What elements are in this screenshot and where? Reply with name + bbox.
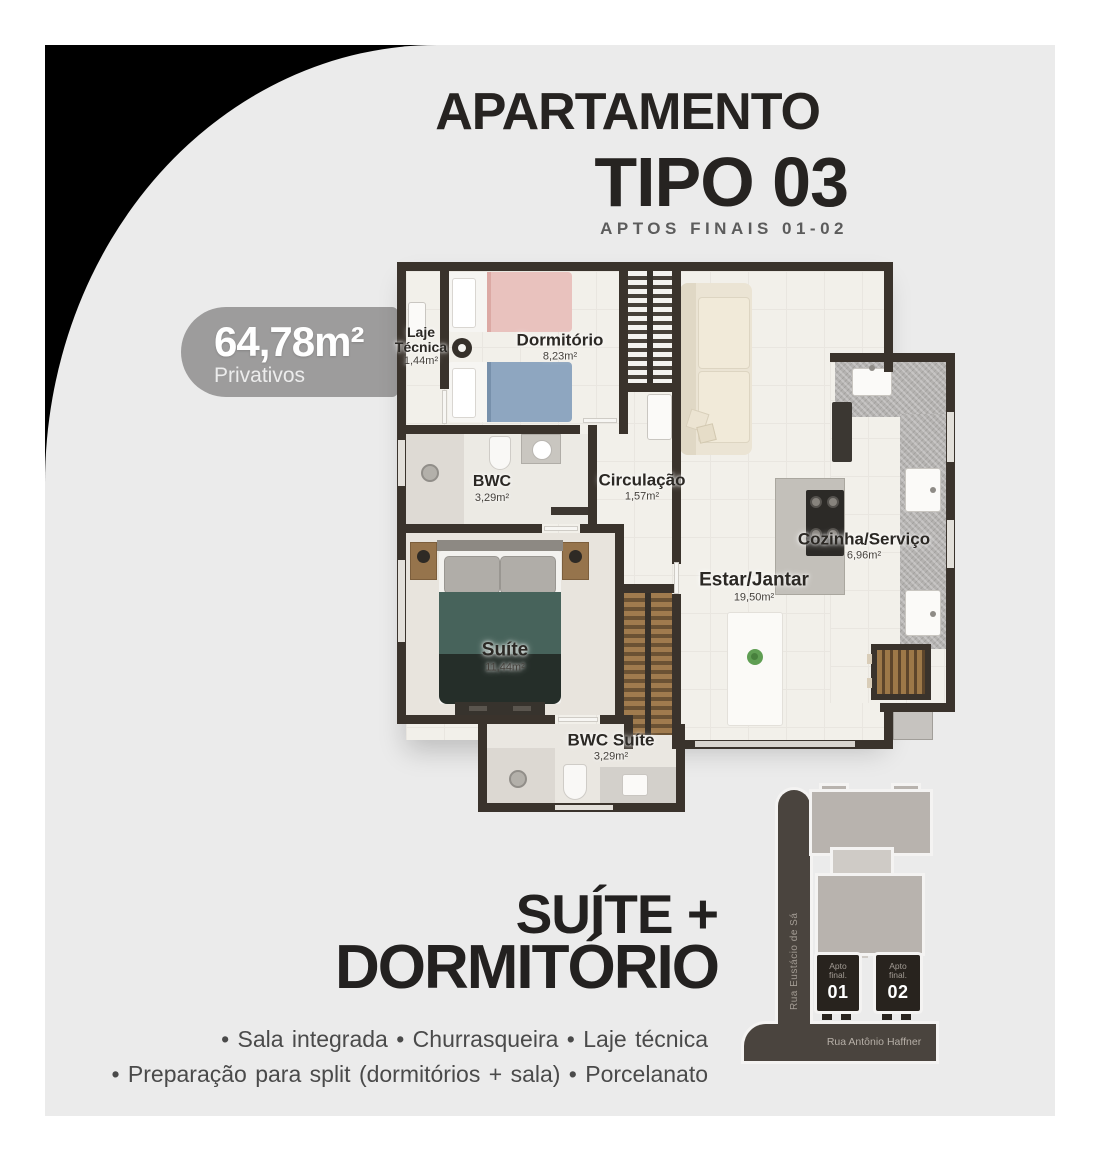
street-joint: [778, 1014, 810, 1061]
window: [947, 520, 954, 568]
dining-table: [727, 612, 783, 726]
building-block-mid: [818, 876, 922, 953]
wall: [397, 524, 542, 533]
dresser-detail: [513, 706, 531, 711]
area-badge: 64,78m² Privativos: [181, 307, 398, 397]
window: [398, 560, 405, 642]
room-label-cozinha-servico: Cozinha/Serviço 6,96m²: [798, 531, 930, 562]
area-badge-value: 64,78m²: [214, 321, 398, 363]
building-connector: [833, 850, 891, 878]
pillow: [500, 556, 556, 594]
room-label-circulacao: Circulação 1,57m²: [599, 472, 686, 503]
bwc-vanity: [521, 434, 561, 464]
unit-number: 01: [817, 982, 859, 1003]
street-horizontal-label: Rua Antônio Haffner: [814, 1036, 934, 1048]
burner-icon: [827, 496, 839, 508]
poster-type: TIPO 03: [594, 142, 848, 222]
wall: [615, 524, 624, 593]
wall: [397, 425, 580, 434]
wall: [619, 262, 628, 392]
room-label-laje-tecnica: Laje Técnica 1,44m²: [383, 325, 459, 367]
pillow: [444, 556, 500, 594]
wall: [619, 392, 628, 434]
sofa: [680, 283, 752, 455]
poster-tagline: APTOS FINAIS 01-02: [600, 219, 848, 239]
window-balcony: [695, 741, 855, 747]
wall: [615, 584, 676, 593]
nightstand: [562, 542, 589, 580]
features-line1: • Sala integrada • Churrasqueira • Laje …: [221, 1026, 708, 1053]
wall: [672, 262, 681, 564]
room-label-bwc-suite: BWC Suíte 3,29m²: [568, 732, 655, 763]
floor-plan: Laje Técnica 1,44m² Dormitório 8,23m² BW…: [397, 262, 955, 814]
kitchen-sink: [852, 368, 892, 396]
kitchen-appliance: [905, 468, 941, 512]
faucet-icon: [869, 365, 875, 371]
building-block-top: [812, 792, 930, 853]
toilet: [563, 764, 587, 800]
vent-center: [458, 344, 466, 352]
hall-closet: [647, 394, 672, 440]
lamp-icon: [417, 550, 430, 563]
window: [947, 412, 954, 462]
toilet: [489, 436, 511, 470]
lamp-icon: [569, 550, 582, 563]
plant-icon: [747, 649, 763, 665]
unit-foot: [822, 1013, 832, 1020]
suite-sink: [622, 774, 648, 796]
wall: [397, 262, 893, 271]
door-leaf: [583, 418, 617, 423]
wall: [397, 715, 555, 724]
laundry-tub: [905, 590, 941, 636]
plant-leaf: [751, 653, 758, 660]
pillow: [452, 278, 476, 328]
unit-apto-final-02: Apto final. 02: [876, 955, 920, 1011]
unit-foot: [841, 1013, 851, 1020]
door-leaf: [558, 717, 598, 722]
street-vertical: Rua Eustácio de Sá: [778, 790, 810, 1040]
wall: [588, 425, 597, 533]
poster-title: APARTAMENTO: [435, 82, 820, 142]
sink-icon: [532, 440, 552, 460]
stairs-lower: [624, 593, 672, 735]
stairs-rail: [645, 593, 651, 735]
unit-label: Apto final.: [876, 962, 920, 981]
window: [555, 805, 613, 810]
room-label-bwc: BWC 3,29m²: [473, 474, 511, 504]
door-leaf: [442, 390, 447, 424]
window: [398, 440, 405, 486]
wall: [830, 353, 955, 362]
grill-handle: [867, 678, 872, 688]
unit-label: Apto final.: [817, 962, 859, 981]
wall: [884, 703, 893, 749]
apartment-poster: APARTAMENTO TIPO 03 APTOS FINAIS 01-02 6…: [0, 0, 1100, 1161]
tv-dresser: [455, 702, 545, 715]
shower-head-icon: [421, 464, 439, 482]
single-bed-pink: [448, 272, 568, 332]
sofa-cushion: [698, 297, 750, 369]
headboard: [437, 540, 563, 551]
stairs-rail: [647, 271, 653, 383]
street-vertical-label: Rua Eustácio de Sá: [789, 860, 800, 1010]
unit-apto-final-01: Apto final. 01: [817, 955, 859, 1011]
shower-head-icon: [509, 770, 527, 788]
pillow: [452, 368, 476, 418]
refrigerator: [832, 402, 852, 462]
burner-icon: [810, 496, 822, 508]
street-horizontal: Rua Antônio Haffner: [744, 1024, 936, 1061]
room-label-dormitorio: Dormitório 8,23m²: [517, 332, 604, 363]
blue-blanket: [487, 362, 572, 422]
knob-icon: [930, 487, 936, 493]
wall: [619, 383, 676, 392]
grill-handle: [867, 654, 872, 664]
knob-icon: [930, 611, 936, 617]
wall: [478, 724, 487, 812]
nightstand: [410, 542, 437, 580]
room-label-estar-jantar: Estar/Jantar 19,50m²: [699, 571, 809, 604]
pink-blanket: [487, 272, 572, 332]
single-bed-blue: [448, 362, 568, 422]
area-badge-label: Privativos: [214, 364, 398, 388]
door-leaf: [674, 562, 679, 594]
room-label-suite: Suíte 11,44m²: [482, 641, 528, 674]
unit-foot: [882, 1013, 892, 1020]
features-line2: • Preparação para split (dormitórios + s…: [111, 1061, 708, 1088]
wall: [672, 594, 681, 749]
double-bed: [437, 540, 563, 704]
churrasqueira-grill: [871, 644, 931, 700]
wall: [615, 584, 624, 724]
door-leaf: [544, 526, 578, 531]
unit-number: 02: [876, 982, 920, 1003]
dresser-detail: [469, 706, 487, 711]
stairs-upper: [628, 271, 672, 383]
unit-foot: [901, 1013, 911, 1020]
headline-line2: DORMITÓRIO: [335, 932, 718, 1003]
